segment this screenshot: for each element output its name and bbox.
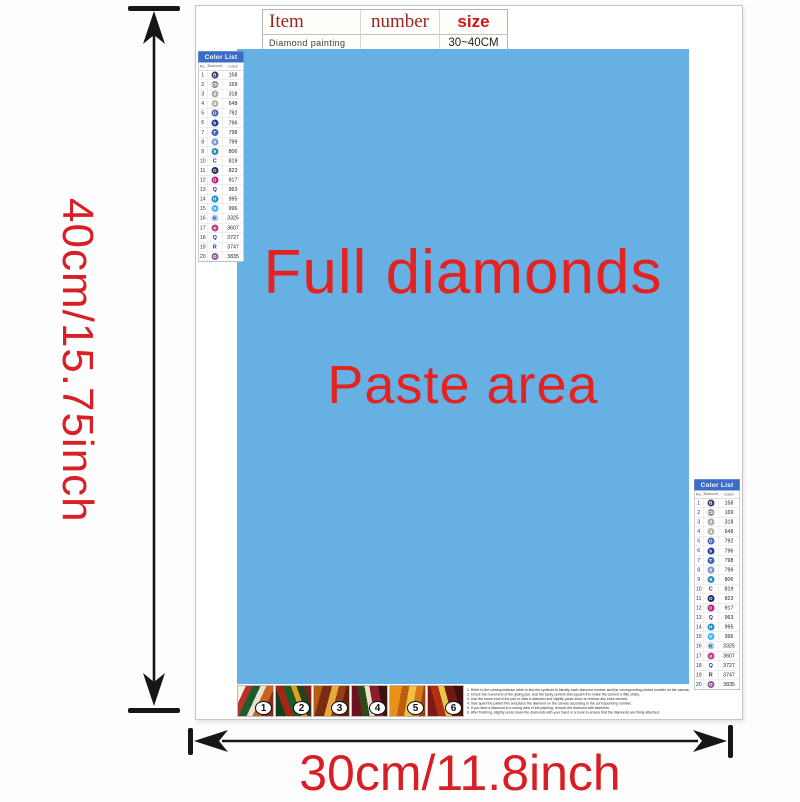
paste-area-title: Full diamonds xyxy=(237,237,689,308)
diamond-symbol-icon: 8 xyxy=(211,138,218,145)
color-list-row: 13Q963 xyxy=(695,613,740,623)
diamond-symbol-icon: Q xyxy=(709,615,713,621)
diamond-symbol-cell: V xyxy=(704,632,719,641)
color-number: 11 xyxy=(695,594,704,603)
diamond-symbol-icon: V xyxy=(707,633,714,640)
color-list-row: 3d318 xyxy=(695,518,740,528)
step-number-badge: 3 xyxy=(331,701,348,715)
color-list-row: 5O792 xyxy=(199,109,244,119)
diamond-symbol-icon: Q xyxy=(709,662,713,668)
color-code: 3727 xyxy=(223,234,244,240)
color-list-row: 19R3747 xyxy=(199,242,244,252)
diamond-symbol-icon: B xyxy=(707,500,714,507)
color-list-row: 7T798 xyxy=(695,556,740,566)
diamond-symbol-icon: O xyxy=(707,681,714,688)
diamond-symbol-icon: V xyxy=(211,205,218,212)
diamond-symbol-cell: C xyxy=(704,584,719,593)
item-size-cell: 30~40CM xyxy=(440,35,507,50)
diamond-symbol-cell: Q xyxy=(208,185,223,194)
column-color: Color xyxy=(719,492,740,497)
color-number: 7 xyxy=(695,556,704,565)
color-list-title: Color List xyxy=(199,52,244,63)
diamond-symbol-icon: T xyxy=(211,129,218,136)
height-dimension-label: 40cm/15.75inch xyxy=(52,198,102,538)
color-number: 17 xyxy=(695,651,704,660)
vertical-dimension-arrow xyxy=(118,2,190,718)
step-thumbnail: 3 xyxy=(313,685,350,717)
step-number-badge: 6 xyxy=(445,701,462,715)
color-number: 10 xyxy=(199,156,208,165)
color-number: 14 xyxy=(199,195,208,204)
color-code: 796 xyxy=(719,548,740,554)
diamond-symbol-cell: d xyxy=(208,90,223,99)
color-number: 2 xyxy=(199,80,208,89)
diamond-symbol-cell: 9 xyxy=(208,147,223,156)
step-thumbnail: 5 xyxy=(389,685,426,717)
color-list-row: 2Cb169 xyxy=(199,80,244,90)
color-number: 18 xyxy=(695,661,704,670)
column-color: Color xyxy=(223,64,244,69)
width-dimension-label: 30cm/11.8inch xyxy=(250,744,670,802)
column-diamond: Diamond xyxy=(208,65,223,69)
color-list-row: 17e3607 xyxy=(199,223,244,233)
diamond-symbol-icon: O xyxy=(211,110,218,117)
diamond-symbol-cell: O xyxy=(208,252,223,261)
item-name-cell: Diamond painting xyxy=(263,35,361,50)
diamond-symbol-cell: K xyxy=(208,214,223,223)
diamond-symbol-cell: Q xyxy=(704,613,719,622)
color-code: 3607 xyxy=(719,653,740,659)
color-list-row: 12D917 xyxy=(695,604,740,614)
color-code: 799 xyxy=(719,567,740,573)
color-number: 8 xyxy=(695,565,704,574)
diamond-symbol-cell: b xyxy=(704,546,719,555)
column-no: No. xyxy=(199,64,208,69)
color-number: 9 xyxy=(695,575,704,584)
diamond-symbol-cell: O xyxy=(208,109,223,118)
color-code: 169 xyxy=(223,82,244,88)
color-number: 15 xyxy=(199,204,208,213)
diamond-symbol-icon: H xyxy=(211,196,218,203)
diamond-symbol-cell: 8 xyxy=(208,137,223,146)
diamond-symbol-cell: O xyxy=(704,594,719,603)
color-number: 20 xyxy=(199,252,208,261)
color-code: 995 xyxy=(223,196,244,202)
color-list-row: 16K3325 xyxy=(199,214,244,224)
color-number: 11 xyxy=(199,166,208,175)
info-table-header-number: number xyxy=(361,10,440,34)
color-code: 3747 xyxy=(719,672,740,678)
color-list-row: 6b796 xyxy=(695,546,740,556)
color-number: 3 xyxy=(199,90,208,99)
diamond-symbol-cell: 9 xyxy=(704,575,719,584)
diamond-symbol-cell: Q xyxy=(208,233,223,242)
diamond-symbol-icon: K xyxy=(211,215,218,222)
color-number: 14 xyxy=(695,623,704,632)
diamond-symbol-cell: 4 xyxy=(208,99,223,108)
diamond-symbol-icon: e xyxy=(211,224,218,231)
diamond-symbol-cell: b xyxy=(208,118,223,127)
diamond-symbol-cell: 4 xyxy=(704,527,719,536)
color-list-right: Color List No. Diamond Color 1B1582Cb169… xyxy=(694,479,740,690)
color-list-row: 12D917 xyxy=(199,176,244,186)
color-number: 16 xyxy=(695,642,704,651)
color-list-title: Color List xyxy=(695,480,740,491)
diamond-symbol-icon: T xyxy=(707,557,714,564)
color-code: 3325 xyxy=(223,215,244,221)
color-list-row: 11O823 xyxy=(199,166,244,176)
color-list-row: 1B158 xyxy=(695,499,740,509)
color-code: 798 xyxy=(223,129,244,135)
diamond-symbol-icon: H xyxy=(707,624,714,631)
diamond-symbol-cell: e xyxy=(704,651,719,660)
color-number: 19 xyxy=(695,670,704,679)
color-number: 5 xyxy=(695,537,704,546)
diamond-symbol-cell: T xyxy=(208,128,223,137)
diamond-symbol-icon: R xyxy=(709,672,713,678)
step-number-badge: 4 xyxy=(369,701,386,715)
color-number: 3 xyxy=(695,518,704,527)
diamond-symbol-cell: V xyxy=(208,204,223,213)
diamond-symbol-cell: H xyxy=(208,195,223,204)
color-number: 5 xyxy=(199,109,208,118)
color-list-row: 3d318 xyxy=(199,90,244,100)
diamond-symbol-icon: 4 xyxy=(211,100,218,107)
color-list-row: 20O3835 xyxy=(199,252,244,262)
diamond-symbol-icon: b xyxy=(211,119,218,126)
color-list-row: 88799 xyxy=(695,565,740,575)
color-code: 3607 xyxy=(223,225,244,231)
color-list-row: 6b796 xyxy=(199,118,244,128)
color-code: 823 xyxy=(719,595,740,601)
info-table-header-size: size xyxy=(440,10,507,34)
color-code: 799 xyxy=(223,139,244,145)
color-code: 318 xyxy=(719,519,740,525)
color-number: 16 xyxy=(199,214,208,223)
color-number: 9 xyxy=(199,147,208,156)
diamond-symbol-cell: e xyxy=(208,223,223,232)
color-code: 917 xyxy=(223,177,244,183)
diamond-symbol-cell: Cb xyxy=(208,80,223,89)
color-list-row: 99806 xyxy=(199,147,244,157)
color-number: 12 xyxy=(695,604,704,613)
diamond-symbol-icon: 9 xyxy=(211,148,218,155)
step-thumbnail: 6 xyxy=(427,685,464,717)
instruction-line: 6. After finishing, slightly press down … xyxy=(467,711,735,716)
step-number-badge: 5 xyxy=(407,701,424,715)
step-thumbnail: 2 xyxy=(275,685,312,717)
color-number: 18 xyxy=(199,233,208,242)
column-no: No. xyxy=(695,492,704,497)
diamond-symbol-cell: T xyxy=(704,556,719,565)
diamond-symbol-cell: Cb xyxy=(704,508,719,517)
product-image: 40cm/15.75inch 30cm/11.8inch Item number… xyxy=(0,0,800,800)
diamond-symbol-cell: H xyxy=(704,623,719,632)
color-code: 798 xyxy=(719,557,740,563)
color-list-row: 5O792 xyxy=(695,537,740,547)
color-list-row: 14H995 xyxy=(695,623,740,633)
diamond-symbol-icon: Q xyxy=(213,187,217,193)
color-code: 158 xyxy=(719,500,740,506)
canvas: Item number size Diamond painting 30~40C… xyxy=(195,5,743,720)
color-number: 15 xyxy=(695,632,704,641)
color-number: 6 xyxy=(199,118,208,127)
color-list-row: 11O823 xyxy=(695,594,740,604)
color-code: 996 xyxy=(719,634,740,640)
color-number: 7 xyxy=(199,128,208,137)
diamond-symbol-cell: d xyxy=(704,518,719,527)
instructions-text: 1. Refer to the correspondence table to … xyxy=(467,688,735,716)
color-code: 996 xyxy=(223,206,244,212)
diamond-symbol-cell: R xyxy=(208,242,223,251)
diamond-symbol-icon: Cb xyxy=(211,81,218,88)
diamond-symbol-icon: d xyxy=(707,519,714,526)
diamond-symbol-cell: D xyxy=(208,176,223,185)
color-number: 10 xyxy=(695,584,704,593)
color-code: 819 xyxy=(223,158,244,164)
diamond-symbol-cell: 8 xyxy=(704,565,719,574)
color-code: 796 xyxy=(223,120,244,126)
diamond-symbol-cell: B xyxy=(208,71,223,80)
info-table-header-row: Item number size xyxy=(263,10,507,35)
diamond-symbol-cell: B xyxy=(704,499,719,508)
color-list-row: 13Q963 xyxy=(199,185,244,195)
color-list-row: 15V996 xyxy=(199,204,244,214)
diamond-symbol-icon: 8 xyxy=(707,566,714,573)
diamond-symbol-cell: O xyxy=(208,166,223,175)
color-number: 12 xyxy=(199,176,208,185)
info-table-header-item: Item xyxy=(263,10,361,34)
color-list-row: 99806 xyxy=(695,575,740,585)
step-number-badge: 1 xyxy=(255,701,272,715)
color-code: 819 xyxy=(719,586,740,592)
color-code: 792 xyxy=(719,538,740,544)
color-number: 4 xyxy=(199,99,208,108)
color-list-row: 18Q3727 xyxy=(695,661,740,671)
color-code: 158 xyxy=(223,72,244,78)
color-list-row: 1B158 xyxy=(199,71,244,81)
color-code: 823 xyxy=(223,167,244,173)
color-code: 963 xyxy=(719,615,740,621)
color-code: 3727 xyxy=(719,662,740,668)
diamond-symbol-cell: Q xyxy=(704,661,719,670)
color-code: 917 xyxy=(719,605,740,611)
color-code: 806 xyxy=(223,148,244,154)
diamond-symbol-cell: R xyxy=(704,670,719,679)
diamond-symbol-cell: O xyxy=(704,537,719,546)
color-list-column-headers: No. Diamond Color xyxy=(199,63,244,71)
color-list-row: 10C819 xyxy=(199,156,244,166)
diamond-symbol-icon: O xyxy=(707,595,714,602)
diamond-symbol-icon: O xyxy=(707,538,714,545)
color-code: 318 xyxy=(223,91,244,97)
diamond-symbol-icon: R xyxy=(213,244,217,250)
diamond-symbol-icon: e xyxy=(707,652,714,659)
step-thumbnail: 1 xyxy=(237,685,274,717)
diamond-symbol-icon: C xyxy=(709,586,713,592)
color-number: 19 xyxy=(199,242,208,251)
color-code: 3835 xyxy=(719,681,740,687)
color-number: 13 xyxy=(695,613,704,622)
color-list-row: 10C819 xyxy=(695,584,740,594)
color-list-row: 44648 xyxy=(695,527,740,537)
color-list-row: 15V996 xyxy=(695,632,740,642)
color-code: 169 xyxy=(719,510,740,516)
diamond-symbol-icon: O xyxy=(211,167,218,174)
info-table-data-row: Diamond painting 30~40CM xyxy=(263,35,507,50)
diamond-symbol-cell: C xyxy=(208,156,223,165)
diamond-symbol-icon: K xyxy=(707,643,714,650)
color-number: 6 xyxy=(695,546,704,555)
color-code: 648 xyxy=(719,529,740,535)
color-number: 17 xyxy=(199,223,208,232)
color-number: 4 xyxy=(695,527,704,536)
diamond-symbol-icon: O xyxy=(211,253,218,260)
color-list-row: 16K3325 xyxy=(695,642,740,652)
color-list-left: Color List No. Diamond Color 1B1582Cb169… xyxy=(198,51,244,262)
paste-area: Full diamonds Paste area xyxy=(237,49,689,684)
item-number-cell xyxy=(361,35,440,50)
color-list-column-headers: No. Diamond Color xyxy=(695,491,740,499)
color-number: 1 xyxy=(199,71,208,80)
paste-area-subtitle: Paste area xyxy=(237,354,689,416)
color-list-row: 17e3607 xyxy=(695,651,740,661)
diamond-symbol-cell: K xyxy=(704,642,719,651)
color-code: 3747 xyxy=(223,244,244,250)
color-list-row: 2Cb169 xyxy=(695,508,740,518)
color-number: 1 xyxy=(695,499,704,508)
diamond-symbol-icon: Q xyxy=(213,234,217,240)
color-code: 3835 xyxy=(223,253,244,259)
color-code: 3325 xyxy=(719,643,740,649)
color-code: 806 xyxy=(719,576,740,582)
diamond-symbol-icon: 9 xyxy=(707,576,714,583)
diamond-symbol-icon: C xyxy=(213,158,217,164)
color-code: 792 xyxy=(223,110,244,116)
diamond-symbol-icon: Cb xyxy=(707,509,714,516)
color-list-row: 7T798 xyxy=(199,128,244,138)
diamond-symbol-icon: D xyxy=(211,177,218,184)
color-list-row: 19R3747 xyxy=(695,670,740,680)
step-thumbnails: 123456 xyxy=(237,685,464,717)
color-code: 963 xyxy=(223,187,244,193)
diamond-symbol-cell: D xyxy=(704,604,719,613)
color-list-row: 88799 xyxy=(199,137,244,147)
diamond-symbol-icon: D xyxy=(707,605,714,612)
diamond-symbol-icon: b xyxy=(707,547,714,554)
color-number: 2 xyxy=(695,508,704,517)
color-number: 8 xyxy=(199,137,208,146)
color-list-row: 44648 xyxy=(199,99,244,109)
diamond-symbol-icon: d xyxy=(211,91,218,98)
color-code: 648 xyxy=(223,101,244,107)
step-number-badge: 2 xyxy=(293,701,310,715)
diamond-symbol-icon: 4 xyxy=(707,528,714,535)
info-table: Item number size Diamond painting 30~40C… xyxy=(262,9,508,51)
color-code: 995 xyxy=(719,624,740,630)
color-list-row: 14H995 xyxy=(199,195,244,205)
step-thumbnail: 4 xyxy=(351,685,388,717)
color-list-row: 18Q3727 xyxy=(199,233,244,243)
diamond-symbol-icon: B xyxy=(211,72,218,79)
column-diamond: Diamond xyxy=(704,493,719,497)
color-number: 13 xyxy=(199,185,208,194)
